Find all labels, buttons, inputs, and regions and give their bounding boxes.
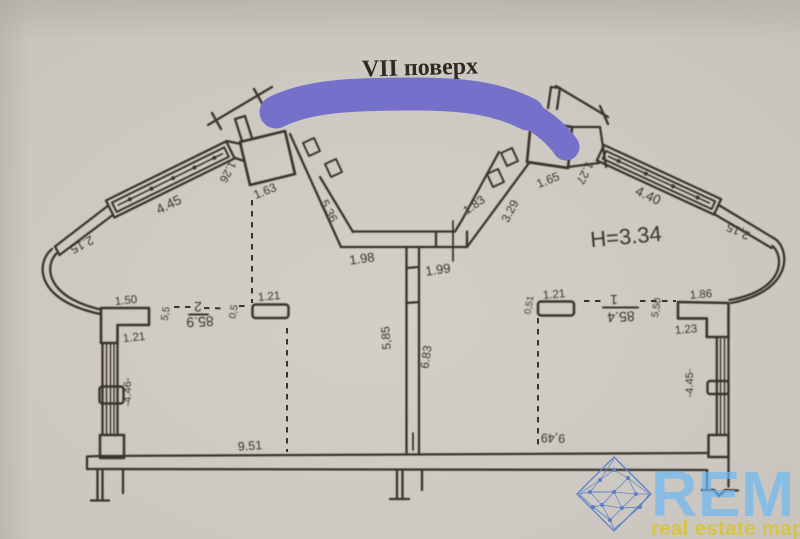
svg-text:-4.46-: -4.46-	[122, 377, 134, 406]
svg-text:2: 2	[194, 299, 202, 315]
svg-text:1.23: 1.23	[674, 323, 697, 337]
svg-text:5,85: 5,85	[378, 326, 394, 351]
svg-text:1: 1	[610, 292, 618, 308]
svg-text:9.51: 9.51	[237, 438, 262, 454]
svg-text:-4.45-: -4.45-	[684, 368, 696, 397]
svg-text:1.21: 1.21	[542, 288, 565, 302]
svg-text:1.86: 1.86	[689, 288, 712, 302]
svg-text:1.50: 1.50	[114, 294, 138, 308]
svg-text:1.21: 1.21	[122, 331, 146, 345]
svg-text:85.9: 85.9	[186, 313, 214, 330]
svg-text:9,49: 9,49	[541, 431, 566, 446]
svg-text:1.21: 1.21	[257, 290, 280, 304]
svg-text:85.4: 85.4	[607, 308, 635, 325]
svg-text:real estate map: real estate map	[651, 517, 800, 539]
